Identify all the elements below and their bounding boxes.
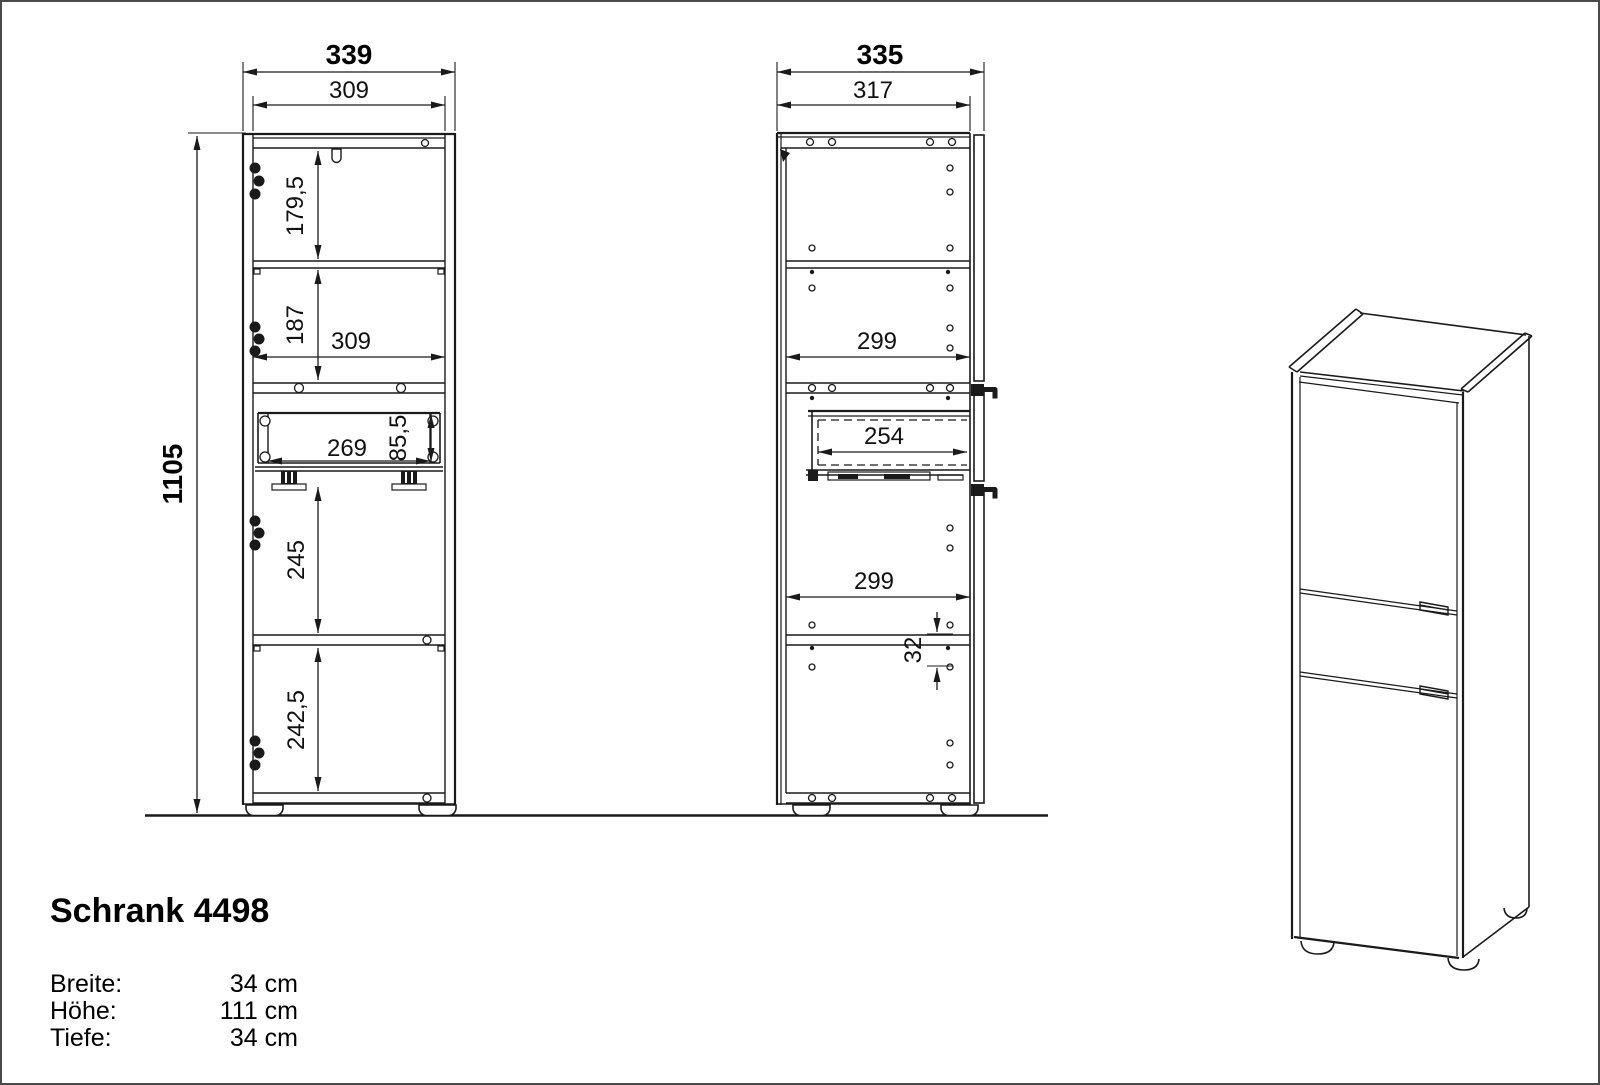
spec-label: Höhe: bbox=[50, 998, 162, 1025]
dim-drawer-depth: 254 bbox=[864, 423, 904, 450]
spec-label: Tiefe: bbox=[50, 1025, 162, 1052]
spec-value: 111 cm bbox=[162, 998, 298, 1025]
side-door-fronts bbox=[971, 135, 998, 803]
spec-row-hoehe: Höhe: 111 cm bbox=[50, 998, 298, 1025]
dim-top-inner-depth: 317 bbox=[853, 77, 893, 104]
hinge-icon bbox=[250, 736, 265, 771]
dim-top-compartment: 179,5 bbox=[282, 176, 309, 236]
door-handle-icon bbox=[984, 487, 998, 499]
perspective-door-gaps bbox=[1300, 589, 1457, 698]
perspective-top bbox=[1289, 309, 1532, 395]
front-bottom-rail bbox=[253, 793, 445, 803]
hinge-icon bbox=[250, 163, 265, 200]
perspective-view-drawing bbox=[1289, 309, 1532, 970]
hinge-icon bbox=[250, 516, 265, 551]
product-info: Schrank 4498 Breite: 34 cm Höhe: 111 cm … bbox=[50, 893, 298, 1052]
side-shelf-2 bbox=[786, 383, 970, 400]
product-specs: Breite: 34 cm Höhe: 111 cm Tiefe: 34 cm bbox=[50, 971, 298, 1052]
front-carcass bbox=[243, 133, 455, 805]
keyhole-hanger-icon bbox=[332, 149, 341, 163]
front-shelf-1 bbox=[253, 261, 445, 274]
perspective-feet bbox=[1301, 908, 1527, 970]
side-back-foot bbox=[793, 805, 830, 816]
front-view-dimensions: 339 309 1105 179,5 187 309 269 85,5 245 … bbox=[157, 39, 455, 813]
dim-hole-spacing: 32 bbox=[900, 637, 927, 664]
dim-bottom-compartment: 242,5 bbox=[283, 690, 310, 750]
perspective-handles bbox=[1420, 602, 1448, 699]
dim-total-height: 1105 bbox=[157, 444, 188, 505]
side-bottom-rail bbox=[786, 793, 970, 803]
technical-drawing-page: 339 309 1105 179,5 187 309 269 85,5 245 … bbox=[0, 0, 1600, 1085]
front-left-foot bbox=[246, 805, 283, 816]
spec-row-tiefe: Tiefe: 34 cm bbox=[50, 1025, 298, 1052]
spec-value: 34 cm bbox=[162, 1025, 298, 1052]
side-shelf-3 bbox=[786, 622, 970, 670]
hinge-icon bbox=[250, 322, 265, 357]
drawer-slide-left bbox=[272, 471, 306, 490]
dim-second-compartment: 187 bbox=[282, 305, 309, 345]
dim-drawer-height: 85,5 bbox=[385, 415, 412, 462]
dim-total-depth: 335 bbox=[857, 39, 904, 70]
perspective-body bbox=[1292, 336, 1529, 958]
dim-lower-shelf-depth: 299 bbox=[854, 568, 894, 595]
product-title: Schrank 4498 bbox=[50, 893, 298, 929]
shelf-pin-holes bbox=[809, 165, 953, 768]
front-view-drawing: 339 309 1105 179,5 187 309 269 85,5 245 … bbox=[157, 39, 456, 816]
side-shelf-1 bbox=[786, 261, 970, 274]
dim-top-inner-width: 309 bbox=[329, 77, 369, 104]
dim-upper-shelf-depth: 299 bbox=[857, 328, 897, 355]
screw-hole-icon bbox=[422, 140, 429, 147]
dim-total-width: 339 bbox=[326, 39, 373, 70]
front-right-foot bbox=[419, 805, 456, 816]
dim-third-compartment: 245 bbox=[283, 540, 310, 580]
drawer-slide-right bbox=[392, 471, 426, 490]
front-shelf-2 bbox=[253, 383, 445, 393]
front-shelf-3 bbox=[253, 635, 445, 651]
spec-label: Breite: bbox=[50, 971, 162, 998]
dim-inner-width: 309 bbox=[331, 328, 371, 355]
door-handle-icon bbox=[984, 387, 998, 399]
side-view-drawing: 335 317 299 254 299 32 bbox=[777, 39, 998, 816]
spec-value: 34 cm bbox=[162, 971, 298, 998]
side-carcass bbox=[777, 133, 970, 805]
spec-row-breite: Breite: 34 cm bbox=[50, 971, 298, 998]
dim-drawer-width: 269 bbox=[327, 435, 367, 462]
side-front-foot bbox=[941, 805, 978, 816]
